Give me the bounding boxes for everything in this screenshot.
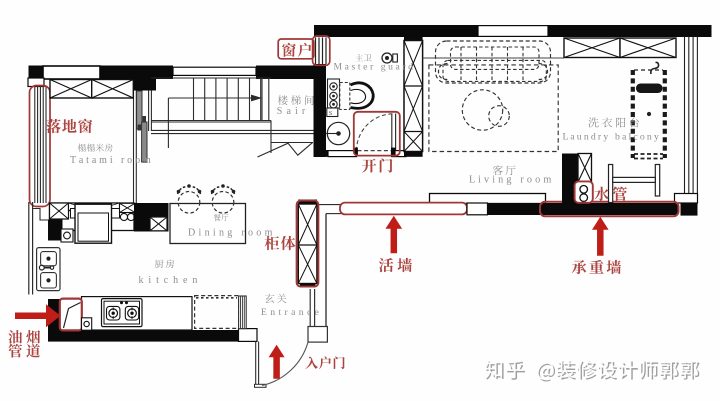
svg-text:L a u n d r y b a l c o n y: L a u n d r y b a l c o n y bbox=[563, 132, 659, 143]
svg-text:M a s t e r g u a r d: M a s t e r g u a r d bbox=[334, 62, 414, 73]
svg-text:S: S bbox=[329, 110, 333, 117]
svg-text:T a t a m i r o o m: T a t a m i r o o m bbox=[70, 155, 151, 166]
svg-text:k i t c h e n: k i t c h e n bbox=[139, 275, 199, 286]
svg-text:D i n i n g r o o m: D i n i n g r o o m bbox=[188, 228, 273, 239]
svg-text:E n t r a n c e: E n t r a n c e bbox=[261, 307, 319, 318]
svg-text:S a i r: S a i r bbox=[277, 106, 306, 117]
svg-text:L i v i n g r o o m: L i v i n g r o o m bbox=[469, 175, 552, 186]
